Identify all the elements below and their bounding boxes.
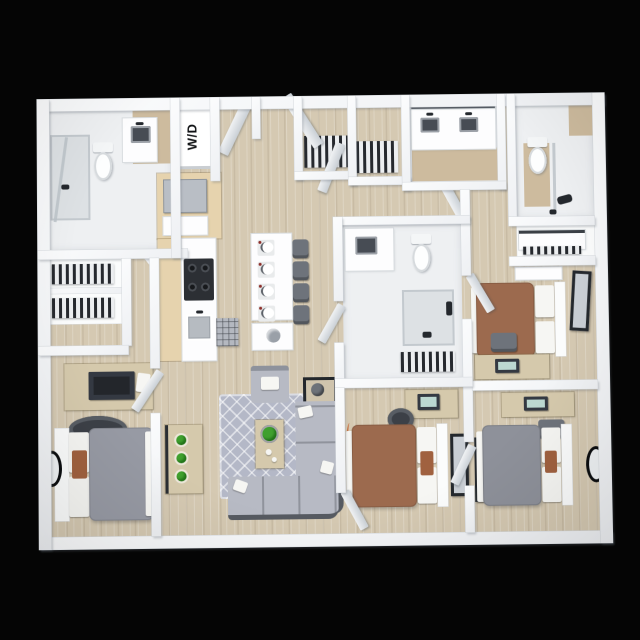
monitor-screen — [498, 362, 516, 370]
place-setting — [258, 262, 275, 278]
armchair-cushion — [261, 377, 279, 390]
bath-accent-floor — [568, 104, 592, 136]
toilet — [94, 152, 112, 180]
interior-wall — [38, 249, 188, 260]
wall-mirror — [570, 270, 592, 331]
green-decor — [176, 471, 186, 481]
vanity-sink — [420, 118, 439, 133]
hanging-clothes — [356, 141, 398, 173]
kitchen-faucet-icon — [196, 310, 203, 313]
refrigerator — [163, 179, 207, 213]
interior-wall — [401, 95, 410, 190]
faucet-icon — [465, 112, 472, 115]
vanity-sink — [355, 236, 377, 254]
table-decor — [266, 449, 272, 455]
toilet-tank — [93, 142, 113, 152]
pillow — [69, 476, 89, 517]
accent-pillow — [545, 451, 557, 473]
interior-wall — [335, 388, 345, 493]
monitor-screen — [94, 376, 130, 394]
toilet — [528, 147, 546, 174]
faucet-icon — [136, 122, 144, 125]
interior-wall — [151, 413, 161, 536]
interior-wall — [333, 215, 470, 225]
plate — [261, 308, 274, 319]
hanging-clothes — [52, 264, 114, 285]
plate — [261, 264, 274, 275]
green-decor — [176, 453, 186, 463]
interior-wall — [210, 97, 220, 180]
vanity-sink — [459, 117, 478, 132]
washer-dryer-label: W/D — [184, 123, 199, 150]
stove-burner — [201, 282, 210, 291]
toilet-tank — [527, 137, 547, 147]
interior-wall — [122, 258, 132, 345]
vanity-sink — [131, 126, 151, 143]
bed-duvet — [89, 427, 154, 520]
toilet — [412, 244, 430, 272]
bed-duvet — [482, 425, 542, 506]
exterior-wall-left — [37, 99, 51, 549]
green-decor — [176, 435, 186, 445]
monitor-screen — [527, 399, 545, 407]
dining-chair — [293, 283, 309, 302]
interior-wall — [347, 96, 356, 185]
interior-wall — [170, 98, 180, 258]
ottoman — [216, 318, 238, 346]
interior-wall — [348, 176, 410, 185]
interior-wall — [402, 181, 506, 190]
potted-plant — [262, 427, 276, 441]
shower-drain — [61, 185, 69, 190]
floor-plan-image: W/D — [0, 0, 640, 640]
plate — [261, 286, 274, 297]
bed-duvet — [352, 424, 417, 507]
dining-chair — [292, 239, 308, 258]
accent-pillow — [420, 451, 433, 475]
toilet-tank — [411, 234, 431, 244]
table-decor — [272, 457, 277, 462]
interior-wall — [509, 256, 595, 266]
interior-wall — [38, 345, 128, 355]
dining-chair — [293, 305, 309, 324]
interior-wall — [472, 380, 597, 391]
accent-pillow — [72, 450, 87, 478]
planter-decor — [311, 383, 324, 396]
dining-chair — [293, 261, 309, 280]
stove-burner — [201, 263, 210, 272]
bowl-decor — [266, 329, 280, 343]
dresser — [516, 267, 562, 280]
stove-burner — [188, 283, 197, 292]
plate — [260, 242, 273, 253]
interior-wall — [460, 190, 470, 276]
shower-drain — [549, 209, 556, 214]
stove-burner — [188, 264, 197, 273]
hanging-clothes — [401, 351, 455, 372]
interior-wall — [150, 258, 160, 368]
interior-wall — [335, 377, 472, 388]
bed-headboard — [555, 282, 566, 356]
interior-wall — [497, 94, 507, 189]
interior-wall — [252, 97, 260, 139]
hanging-clothes — [523, 246, 581, 255]
floor-plan: W/D — [37, 93, 613, 550]
interior-wall — [333, 217, 343, 301]
hanging-clothes — [52, 298, 114, 319]
pillow — [535, 285, 555, 317]
kitchen-sink — [186, 314, 212, 340]
interior-wall — [294, 96, 303, 179]
interior-wall — [465, 486, 475, 533]
bed-headboard — [561, 424, 572, 505]
desk-chair — [491, 333, 517, 352]
place-setting — [258, 284, 275, 300]
pillow — [535, 321, 555, 353]
shower-fixture — [446, 301, 452, 315]
place-setting — [258, 306, 275, 322]
kitchen-counter-upper — [163, 217, 207, 235]
faucet-icon — [426, 113, 433, 116]
interior-wall — [509, 216, 595, 226]
monitor-screen — [420, 397, 436, 407]
bed-headboard — [437, 424, 448, 507]
interior-wall — [295, 171, 357, 180]
place-setting — [257, 240, 274, 256]
vanity-accent-floor — [412, 148, 498, 182]
shower-drain — [423, 332, 432, 338]
